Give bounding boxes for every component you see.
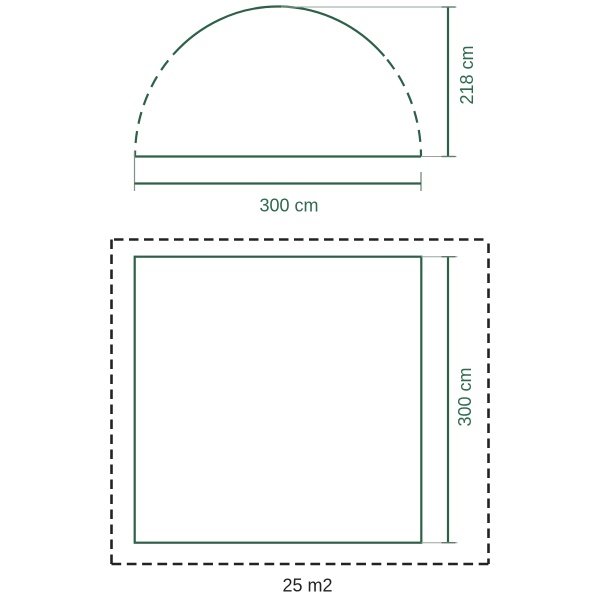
svg-text:218 cm: 218 cm (457, 45, 477, 104)
svg-text:300 cm: 300 cm (455, 367, 475, 426)
svg-text:300 cm: 300 cm (259, 196, 318, 216)
svg-text:25 m2: 25 m2 (282, 576, 332, 596)
